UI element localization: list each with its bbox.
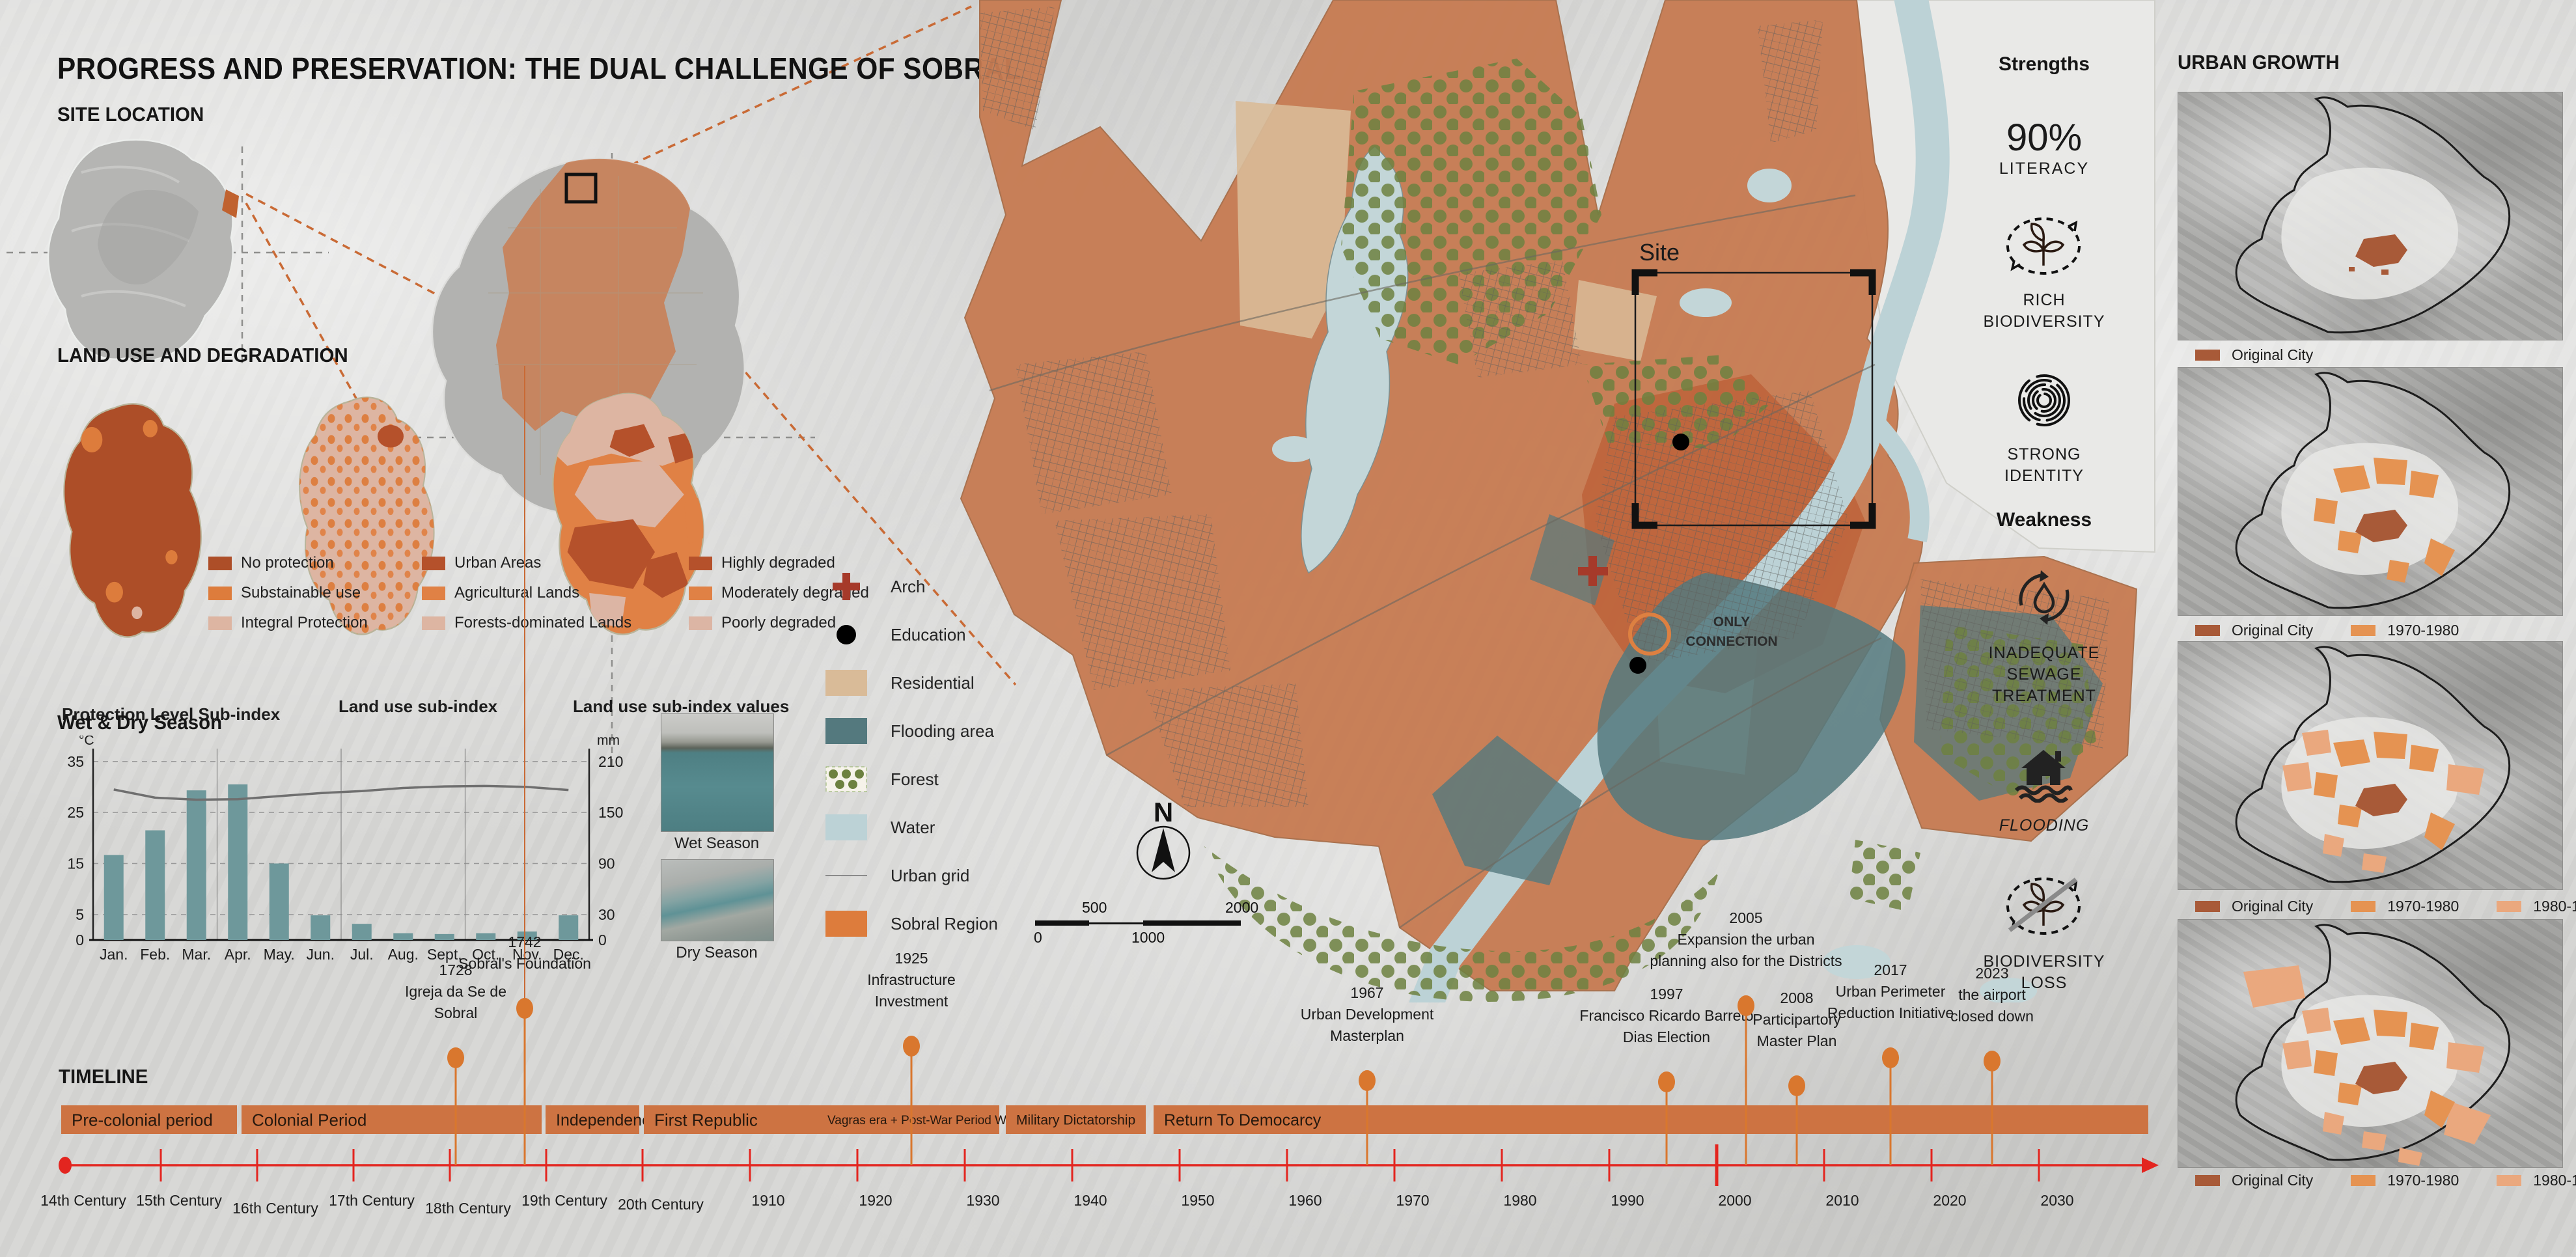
event-dot[interactable]	[447, 1047, 464, 1068]
timeline-tick-label: 1990	[1611, 1192, 1644, 1209]
event-label: 1742	[508, 933, 541, 950]
event-dot[interactable]	[1658, 1071, 1675, 1092]
event-label: Sobral's Foundation	[458, 955, 591, 972]
event-dot[interactable]	[903, 1036, 920, 1057]
event-label: Urban Development	[1301, 1006, 1434, 1023]
timeline[interactable]: Pre-colonial periodColonial PeriodIndepe…	[0, 0, 2576, 1257]
timeline-tick-label: 19th Century	[521, 1192, 607, 1209]
event-label: 1925	[894, 950, 928, 967]
timeline-tick-label: 2020	[1933, 1192, 1966, 1209]
event-label: Sobral	[434, 1004, 477, 1021]
timeline-tick-label: 2010	[1825, 1192, 1859, 1209]
timeline-period-label: Colonial Period	[252, 1110, 367, 1129]
timeline-tick-label: 20th Century	[618, 1196, 704, 1213]
event-dot[interactable]	[1882, 1047, 1899, 1068]
event-label: 1997	[1650, 986, 1683, 1002]
event-dot[interactable]	[516, 998, 533, 1019]
event-label: Igreja da Se de	[405, 983, 506, 1000]
event-dot[interactable]	[1738, 995, 1754, 1016]
event-label: Infrastructure	[867, 971, 956, 988]
event-label: 2005	[1729, 909, 1762, 926]
timeline-tick-label: 1920	[859, 1192, 892, 1209]
event-label: 2008	[1780, 989, 1813, 1006]
timeline-tick-label: 1970	[1396, 1192, 1429, 1209]
event-label: Master Plan	[1757, 1032, 1837, 1049]
timeline-period-label: Pre-colonial period	[72, 1110, 213, 1129]
event-label: Expansion the urban	[1678, 931, 1815, 948]
timeline-tick-label: 1960	[1288, 1192, 1322, 1209]
timeline-tick-label: 2030	[2040, 1192, 2073, 1209]
timeline-tick-label: 14th Century	[40, 1192, 126, 1209]
timeline-tick-label: 15th Century	[136, 1192, 222, 1209]
event-label: Masterplan	[1330, 1027, 1404, 1044]
event-label: 1967	[1350, 984, 1383, 1001]
timeline-tick-label: 1930	[966, 1192, 999, 1209]
timeline-tick-label: 1940	[1073, 1192, 1107, 1209]
timeline-tick-label: 1950	[1181, 1192, 1214, 1209]
timeline-period-label: Return To Democarcy	[1164, 1111, 1322, 1129]
timeline-period-label: Independence	[556, 1111, 659, 1129]
event-label: Reduction Initiative	[1827, 1004, 1954, 1021]
timeline-period-label: First Republic	[654, 1110, 758, 1129]
event-label: Dias Election	[1623, 1029, 1710, 1045]
event-label: Urban Perimeter	[1836, 983, 1946, 1000]
poster-canvas: PROGRESS AND PRESERVATION: THE DUAL CHAL…	[0, 0, 2576, 1257]
timeline-tick-label: 16th Century	[232, 1200, 318, 1217]
timeline-period-label: Military Dictatorship	[1016, 1113, 1135, 1128]
event-label: closed down	[1950, 1008, 2034, 1025]
event-dot[interactable]	[1984, 1051, 2001, 1071]
event-label: 2017	[1874, 961, 1907, 978]
event-label: the airport	[1958, 986, 2026, 1003]
timeline-start-dot	[59, 1157, 72, 1174]
event-dot[interactable]	[1788, 1075, 1805, 1096]
timeline-tick-label: 1980	[1503, 1192, 1536, 1209]
timeline-tick-label: 2000	[1718, 1192, 1751, 1209]
event-label: 2023	[1975, 965, 2008, 982]
timeline-arrowhead	[2142, 1157, 2159, 1173]
timeline-tick-label: 18th Century	[425, 1200, 511, 1217]
timeline-period-label: Vagras era + Post-War Period War	[827, 1114, 1018, 1127]
event-label: Francisco Ricardo Barreto	[1579, 1007, 1753, 1024]
event-dot[interactable]	[1359, 1070, 1376, 1091]
event-label: planning also for the Districts	[1650, 952, 1842, 969]
timeline-tick-label: 17th Century	[329, 1192, 415, 1209]
timeline-tick-label: 1910	[751, 1192, 784, 1209]
event-label: Investment	[875, 993, 949, 1010]
